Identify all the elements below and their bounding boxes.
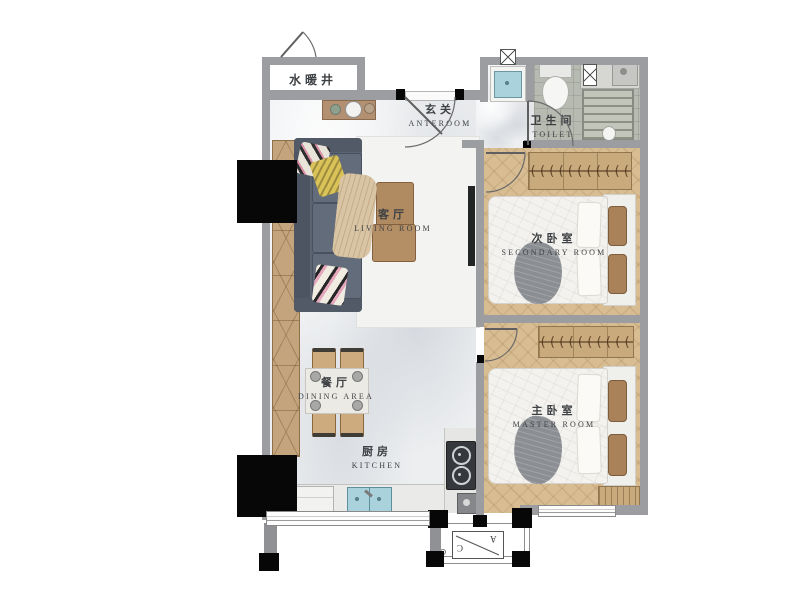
door-jamb bbox=[523, 141, 531, 148]
wall bbox=[640, 57, 648, 515]
console-plant bbox=[330, 104, 341, 115]
master-room-label: 主卧室 MASTER ROOM bbox=[494, 402, 614, 429]
structural-block bbox=[259, 553, 279, 571]
balcony-post bbox=[264, 523, 277, 555]
headboard-cushion bbox=[608, 254, 627, 294]
kitchen-label-zh: 厨房 bbox=[317, 443, 437, 459]
wardrobe: (((((((((((((( bbox=[538, 326, 634, 358]
appliance-dial bbox=[463, 499, 470, 506]
stove-burner bbox=[452, 446, 471, 465]
entry-threshold bbox=[405, 91, 457, 101]
balcony-post bbox=[430, 528, 441, 553]
door-arc bbox=[303, 32, 316, 57]
console-plant bbox=[364, 103, 375, 114]
ac-label-box: C A bbox=[452, 531, 504, 559]
structural-column bbox=[237, 160, 297, 223]
wall bbox=[476, 362, 484, 515]
master-window bbox=[538, 505, 616, 517]
hanger-icons: (((((((((((((( bbox=[539, 335, 634, 350]
door-leaf bbox=[281, 32, 303, 57]
floor-plan-canvas: (((((((((((((( (((((((((((((( bbox=[0, 0, 800, 600]
dining-area-label: 餐厅 DINING AREA bbox=[276, 374, 396, 401]
wall bbox=[524, 140, 648, 148]
wall bbox=[476, 148, 484, 327]
kitchen-label-en: KITCHEN bbox=[317, 461, 437, 470]
anteroom-label-zh: 玄关 bbox=[380, 101, 500, 117]
washer-door bbox=[620, 68, 627, 75]
wall bbox=[462, 140, 484, 148]
door-jamb bbox=[477, 355, 484, 363]
burner-center bbox=[458, 473, 461, 476]
structural-block bbox=[426, 551, 444, 567]
hanger-icons: (((((((((((((( bbox=[529, 164, 632, 179]
living-room-label: 客厅 LIVING ROOM bbox=[333, 206, 453, 233]
toilet-label: 卫生间 TOILET bbox=[493, 112, 613, 139]
wall bbox=[262, 90, 365, 100]
table-knob bbox=[310, 400, 321, 411]
master-room-label-en: MASTER ROOM bbox=[494, 420, 614, 429]
door-jamb bbox=[455, 89, 464, 100]
basin-drain bbox=[505, 81, 509, 85]
structural-block bbox=[428, 510, 448, 528]
wall bbox=[480, 57, 488, 102]
anteroom-label: 玄关 ANTEROOM bbox=[380, 101, 500, 128]
living-room-label-en: LIVING ROOM bbox=[333, 224, 453, 233]
structural-column bbox=[237, 455, 297, 517]
utility-shaft-label-zh: 水暖井 bbox=[253, 71, 373, 88]
structural-block bbox=[473, 515, 487, 527]
dining-area-label-en: DINING AREA bbox=[276, 392, 396, 401]
toilet-label-zh: 卫生间 bbox=[493, 112, 613, 128]
tv bbox=[468, 186, 475, 266]
kitchen-window bbox=[266, 511, 430, 526]
ac-letter-a: A bbox=[490, 534, 497, 544]
secondary-room-label-en: SECONDARY ROOM bbox=[494, 248, 614, 257]
wall bbox=[484, 315, 648, 323]
wardrobe: (((((((((((((( bbox=[528, 152, 632, 190]
burner-center bbox=[458, 453, 461, 456]
secondary-room-label-zh: 次卧室 bbox=[494, 230, 614, 246]
toilet-label-en: TOILET bbox=[493, 130, 613, 139]
headboard-cushion bbox=[608, 434, 627, 476]
kitchen-label: 厨房 KITCHEN bbox=[317, 443, 437, 470]
duct-shaft-symbol bbox=[583, 64, 597, 86]
sink-drain bbox=[377, 497, 381, 501]
anteroom-label-en: ANTEROOM bbox=[380, 119, 500, 128]
wall bbox=[262, 57, 365, 65]
living-room-label-zh: 客厅 bbox=[333, 206, 453, 222]
utility-shaft-label: 水暖井 bbox=[253, 71, 373, 88]
ac-letter-c: C bbox=[457, 543, 463, 553]
dining-area-label-zh: 餐厅 bbox=[276, 374, 396, 390]
bed-pillow bbox=[576, 426, 602, 475]
wall bbox=[526, 60, 534, 102]
door-jamb bbox=[396, 89, 405, 100]
sink-drain bbox=[355, 497, 359, 501]
structural-block bbox=[512, 508, 532, 528]
stove-burner bbox=[452, 466, 471, 485]
throw-pillow bbox=[312, 264, 349, 306]
table-knob bbox=[352, 400, 363, 411]
fridge bbox=[296, 486, 334, 513]
master-room-label-zh: 主卧室 bbox=[494, 402, 614, 418]
duct-shaft-symbol bbox=[500, 49, 516, 65]
console-plate bbox=[345, 101, 362, 118]
secondary-room-label: 次卧室 SECONDARY ROOM bbox=[494, 230, 614, 257]
structural-block bbox=[512, 551, 530, 567]
